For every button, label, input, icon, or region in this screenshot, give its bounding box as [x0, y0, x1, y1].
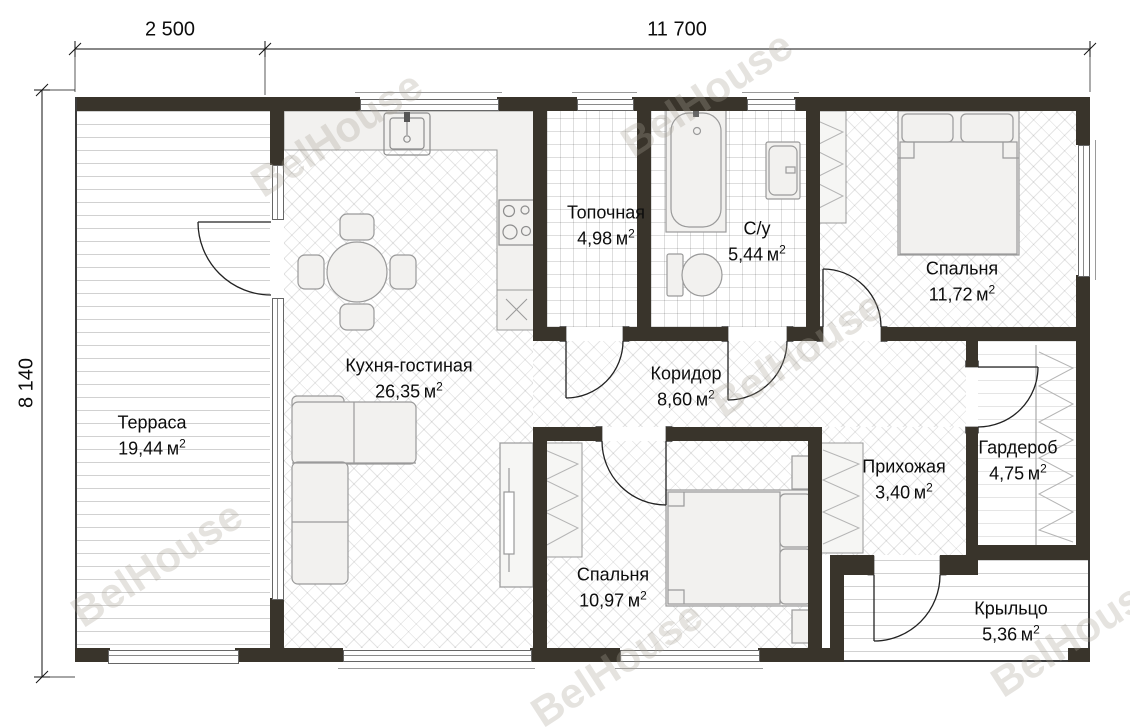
tv-stand: [500, 443, 533, 587]
door-bathroom: [728, 341, 787, 400]
window-sill: [615, 668, 763, 669]
window-sill: [1095, 140, 1096, 280]
wall: [966, 341, 978, 367]
room-label-kitchen-living: Кухня-гостиная 26,35 м2: [345, 354, 472, 405]
room-name: Прихожая: [862, 455, 945, 480]
room-label-wardrobe-room: Гардероб 4,75 м2: [978, 436, 1057, 487]
wall: [533, 427, 602, 441]
wall: [806, 111, 820, 327]
wall: [623, 327, 728, 341]
room-name: Коридор: [650, 362, 721, 387]
room-area: 26,35 м2: [345, 379, 472, 405]
wall: [758, 648, 830, 662]
wall: [966, 545, 1090, 560]
room-name: Терраса: [117, 411, 186, 436]
room-label-bedroom2: Спальня 10,97 м2: [577, 563, 649, 614]
door-wardrobe-room: [978, 367, 1038, 427]
door-boiler-room: [566, 341, 623, 398]
floor-plan: Терраса 19,44 м2 Кухня-гостиная 26,35 м2…: [0, 0, 1130, 727]
room-name: Кухня-гостиная: [345, 354, 472, 379]
room-area: 4,98 м2: [567, 226, 645, 252]
window: [343, 650, 532, 662]
wall: [270, 97, 284, 165]
washing-machine-icon: [766, 142, 800, 199]
window: [577, 99, 634, 111]
window: [620, 650, 760, 662]
room-area: 11,72 м2: [926, 282, 998, 308]
wall: [632, 97, 747, 111]
room-label-terrace: Терраса 19,44 м2: [117, 411, 186, 462]
dimension-top-right: 11 700: [647, 19, 707, 42]
wall: [270, 598, 284, 662]
door-bedroom2: [602, 441, 666, 505]
wall: [966, 427, 978, 545]
terrace-corner-block: [75, 648, 110, 662]
room-area: 8,60 м2: [650, 387, 721, 413]
room-label-porch: Крыльцо 5,36 м2: [974, 597, 1047, 648]
porch-edge: [844, 660, 1090, 662]
room-name: Спальня: [577, 563, 649, 588]
terrace-edge: [75, 97, 77, 662]
room-area: 5,36 м2: [974, 622, 1047, 648]
room-label-bedroom1: Спальня 11,72 м2: [926, 257, 998, 308]
toilet-icon: [667, 254, 722, 296]
wall: [533, 97, 547, 341]
wall: [75, 97, 360, 111]
wall: [881, 327, 1090, 341]
wall: [830, 555, 874, 575]
room-name: Топочная: [567, 201, 645, 226]
room-name: Крыльцо: [974, 597, 1047, 622]
window: [747, 99, 796, 111]
room-area: 19,44 м2: [117, 436, 186, 462]
terrace-railing: [108, 650, 239, 664]
window: [272, 298, 284, 600]
room-area: 5,44 м2: [728, 242, 786, 268]
room-label-hallway: Прихожая 3,40 м2: [862, 455, 945, 506]
sofa: [292, 396, 416, 584]
wall: [808, 441, 822, 648]
dimension-top-left: 2 500: [145, 19, 195, 42]
window-sill: [572, 92, 637, 93]
wall: [666, 427, 822, 441]
room-area: 4,75 м2: [978, 461, 1057, 487]
wall: [1076, 275, 1090, 560]
bathtub-icon: [666, 108, 726, 232]
window-sill: [355, 92, 502, 93]
wall: [533, 327, 566, 341]
room-name: С/у: [728, 217, 786, 242]
wall: [533, 427, 547, 648]
window: [272, 165, 284, 220]
wall: [794, 97, 1090, 111]
door-bedroom1: [823, 269, 881, 327]
kitchen-counter: [284, 111, 536, 330]
dimension-left: 8 140: [16, 358, 39, 408]
room-label-corridor: Коридор 8,60 м2: [650, 362, 721, 413]
room-label-bathroom: С/у 5,44 м2: [728, 217, 786, 268]
bed-double-2: [666, 456, 813, 643]
terrace-corner-block: [235, 648, 270, 662]
window: [1078, 145, 1090, 277]
window-sill: [742, 92, 799, 93]
room-name: Спальня: [926, 257, 998, 282]
room-area: 10,97 м2: [577, 588, 649, 614]
wall: [530, 648, 620, 662]
porch-edge: [1088, 560, 1090, 662]
window: [360, 99, 499, 111]
wall: [787, 327, 823, 341]
door-terrace: [198, 222, 271, 295]
wall: [1076, 97, 1090, 145]
room-name: Гардероб: [978, 436, 1057, 461]
dining-table: [298, 214, 416, 330]
room-area: 3,40 м2: [862, 480, 945, 506]
bed-double-1: [898, 111, 1019, 255]
wall: [940, 555, 978, 575]
wardrobe-bedroom2: [542, 443, 582, 557]
window-sill: [338, 668, 535, 669]
door-entrance: [874, 575, 940, 641]
room-label-boiler-room: Топочная 4,98 м2: [567, 201, 645, 252]
coat-rack-hallway: [820, 443, 863, 553]
porch-corner-block: [1068, 648, 1090, 662]
